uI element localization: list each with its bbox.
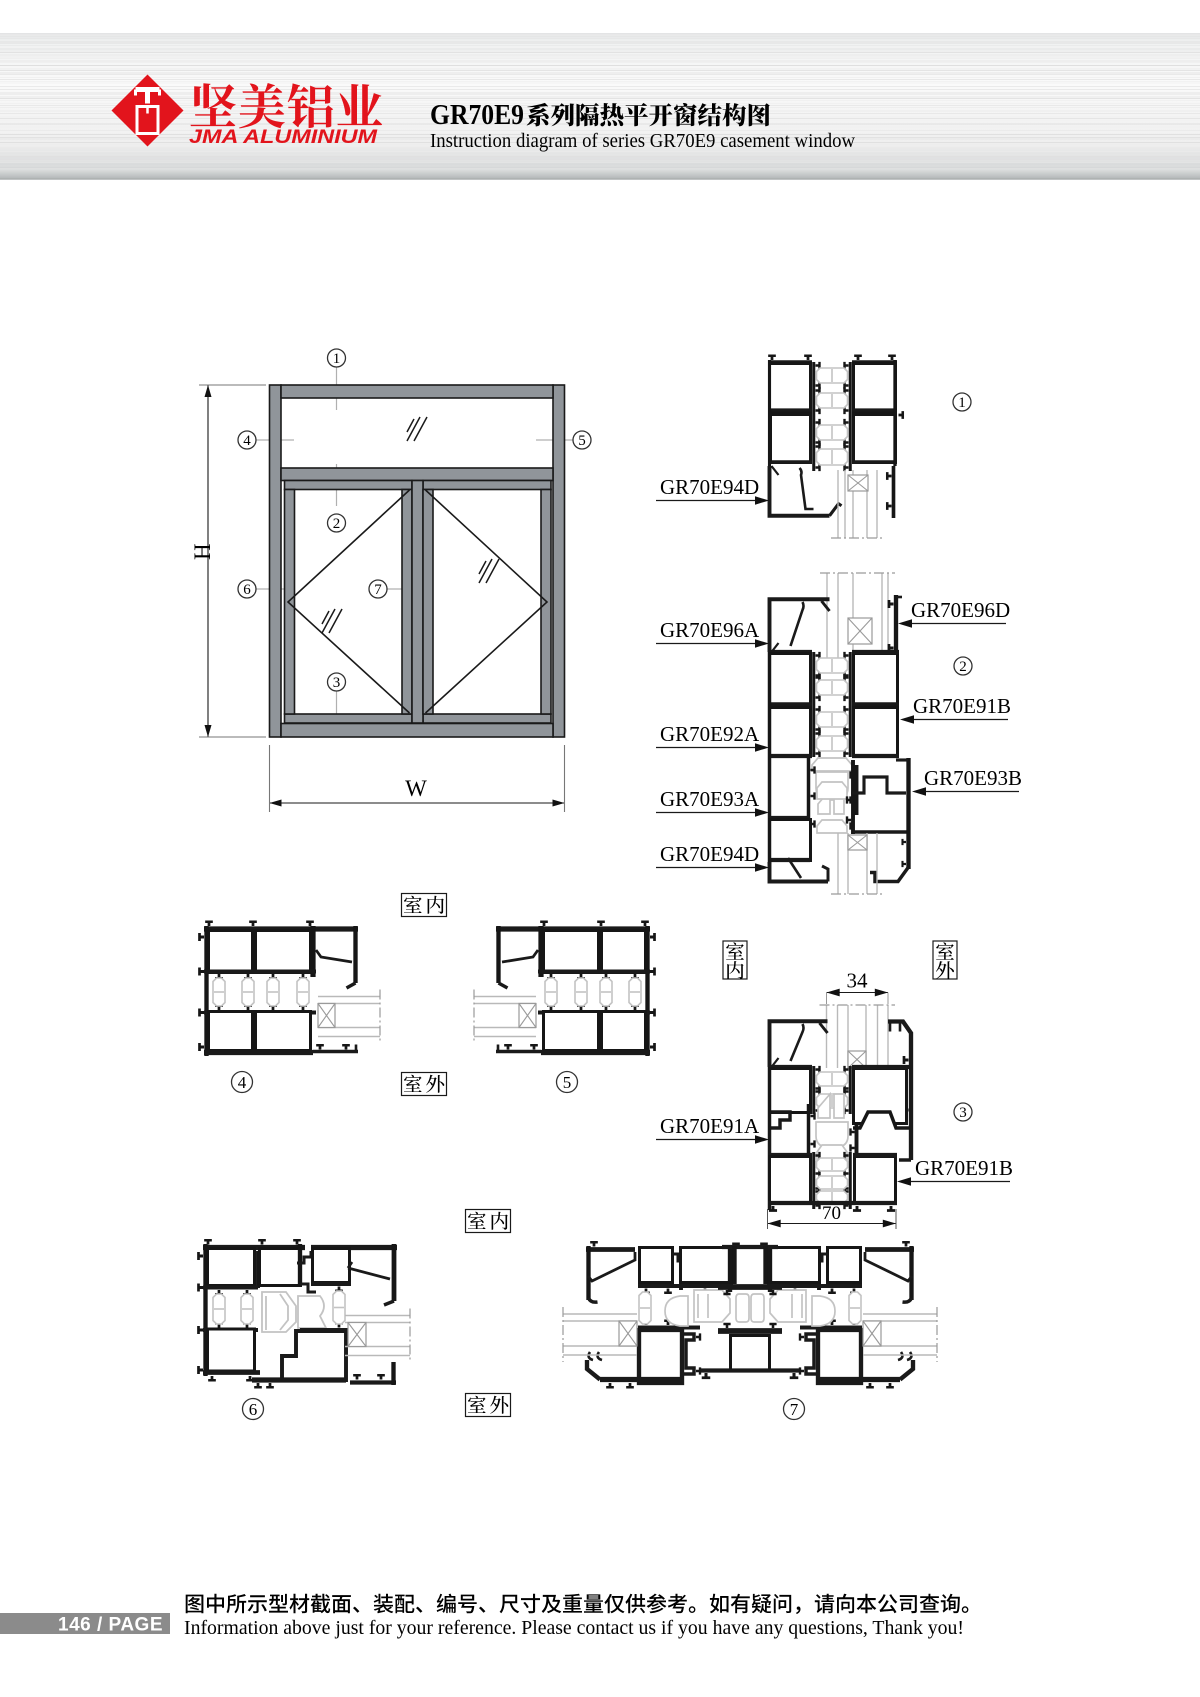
svg-text:7: 7 bbox=[374, 582, 382, 598]
svg-text:5: 5 bbox=[578, 433, 586, 449]
svg-text:1: 1 bbox=[958, 395, 966, 411]
svg-text:4: 4 bbox=[243, 433, 251, 449]
svg-text:GR70E91A: GR70E91A bbox=[660, 1114, 760, 1138]
svg-text:34: 34 bbox=[847, 969, 869, 993]
svg-text:4: 4 bbox=[238, 1073, 247, 1092]
svg-text:GR70E93B: GR70E93B bbox=[924, 766, 1022, 790]
svg-text:Information above just for you: Information above just for your referenc… bbox=[184, 1617, 964, 1639]
svg-text:70: 70 bbox=[822, 1203, 841, 1224]
svg-text:3: 3 bbox=[959, 1105, 967, 1121]
svg-text:2: 2 bbox=[333, 516, 341, 532]
svg-text:3: 3 bbox=[333, 675, 341, 691]
svg-text:1: 1 bbox=[333, 351, 341, 367]
svg-text:GR70E91B: GR70E91B bbox=[913, 694, 1011, 718]
svg-text:GR70E92A: GR70E92A bbox=[660, 722, 760, 746]
svg-text:Instruction diagram of series: Instruction diagram of series GR70E9 cas… bbox=[430, 130, 856, 152]
svg-text:146 / PAGE: 146 / PAGE bbox=[58, 1615, 163, 1636]
svg-text:GR70E94D: GR70E94D bbox=[660, 842, 759, 866]
svg-text:GR70E96A: GR70E96A bbox=[660, 618, 760, 642]
svg-text:7: 7 bbox=[790, 1400, 799, 1419]
svg-text:6: 6 bbox=[249, 1400, 258, 1419]
svg-text:2: 2 bbox=[959, 659, 967, 675]
svg-text:GR70E94D: GR70E94D bbox=[660, 475, 759, 499]
svg-text:W: W bbox=[405, 776, 427, 801]
svg-text:6: 6 bbox=[243, 582, 251, 598]
svg-text:GR70E93A: GR70E93A bbox=[660, 787, 760, 811]
svg-text:JMA ALUMINIUM: JMA ALUMINIUM bbox=[189, 127, 378, 148]
svg-text:H: H bbox=[190, 543, 215, 560]
svg-text:GR70E9: GR70E9 bbox=[430, 99, 524, 131]
svg-text:GR70E91B: GR70E91B bbox=[915, 1156, 1013, 1180]
svg-text:5: 5 bbox=[563, 1073, 572, 1092]
svg-text:GR70E96D: GR70E96D bbox=[911, 598, 1010, 622]
